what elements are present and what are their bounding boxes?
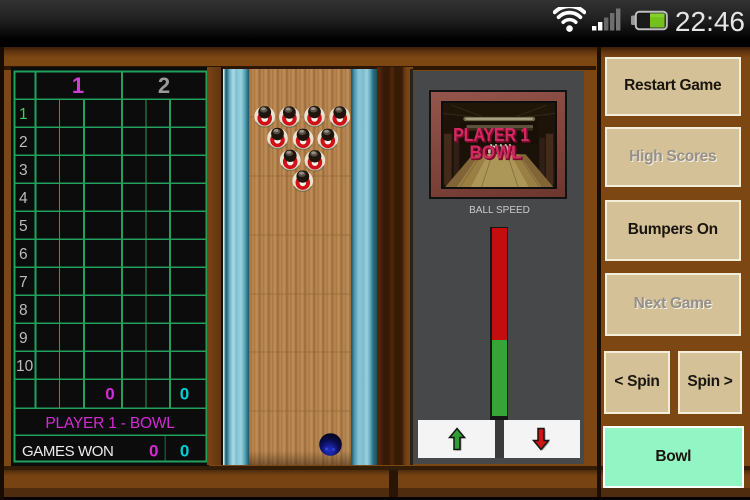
svg-text:PLAYER 1 - BOWL: PLAYER 1 - BOWL bbox=[45, 415, 175, 432]
svg-text:6: 6 bbox=[19, 246, 28, 263]
svg-text:9: 9 bbox=[19, 330, 28, 347]
svg-text:5: 5 bbox=[19, 218, 28, 235]
svg-text:7: 7 bbox=[19, 274, 28, 291]
svg-text:2: 2 bbox=[158, 73, 170, 98]
svg-text:GAMES WON: GAMES WON bbox=[22, 443, 113, 460]
svg-text:2: 2 bbox=[19, 134, 28, 151]
svg-text:8: 8 bbox=[19, 302, 28, 319]
svg-text:BOWL: BOWL bbox=[469, 141, 521, 162]
svg-text:1: 1 bbox=[19, 106, 28, 123]
svg-text:10: 10 bbox=[16, 358, 34, 375]
svg-text:0: 0 bbox=[149, 442, 158, 461]
svg-text:0: 0 bbox=[105, 385, 114, 404]
svg-text:1: 1 bbox=[72, 73, 84, 98]
svg-text:0: 0 bbox=[180, 442, 189, 461]
svg-text:3: 3 bbox=[19, 162, 28, 179]
svg-text:4: 4 bbox=[19, 190, 28, 207]
svg-text:0: 0 bbox=[180, 385, 189, 404]
